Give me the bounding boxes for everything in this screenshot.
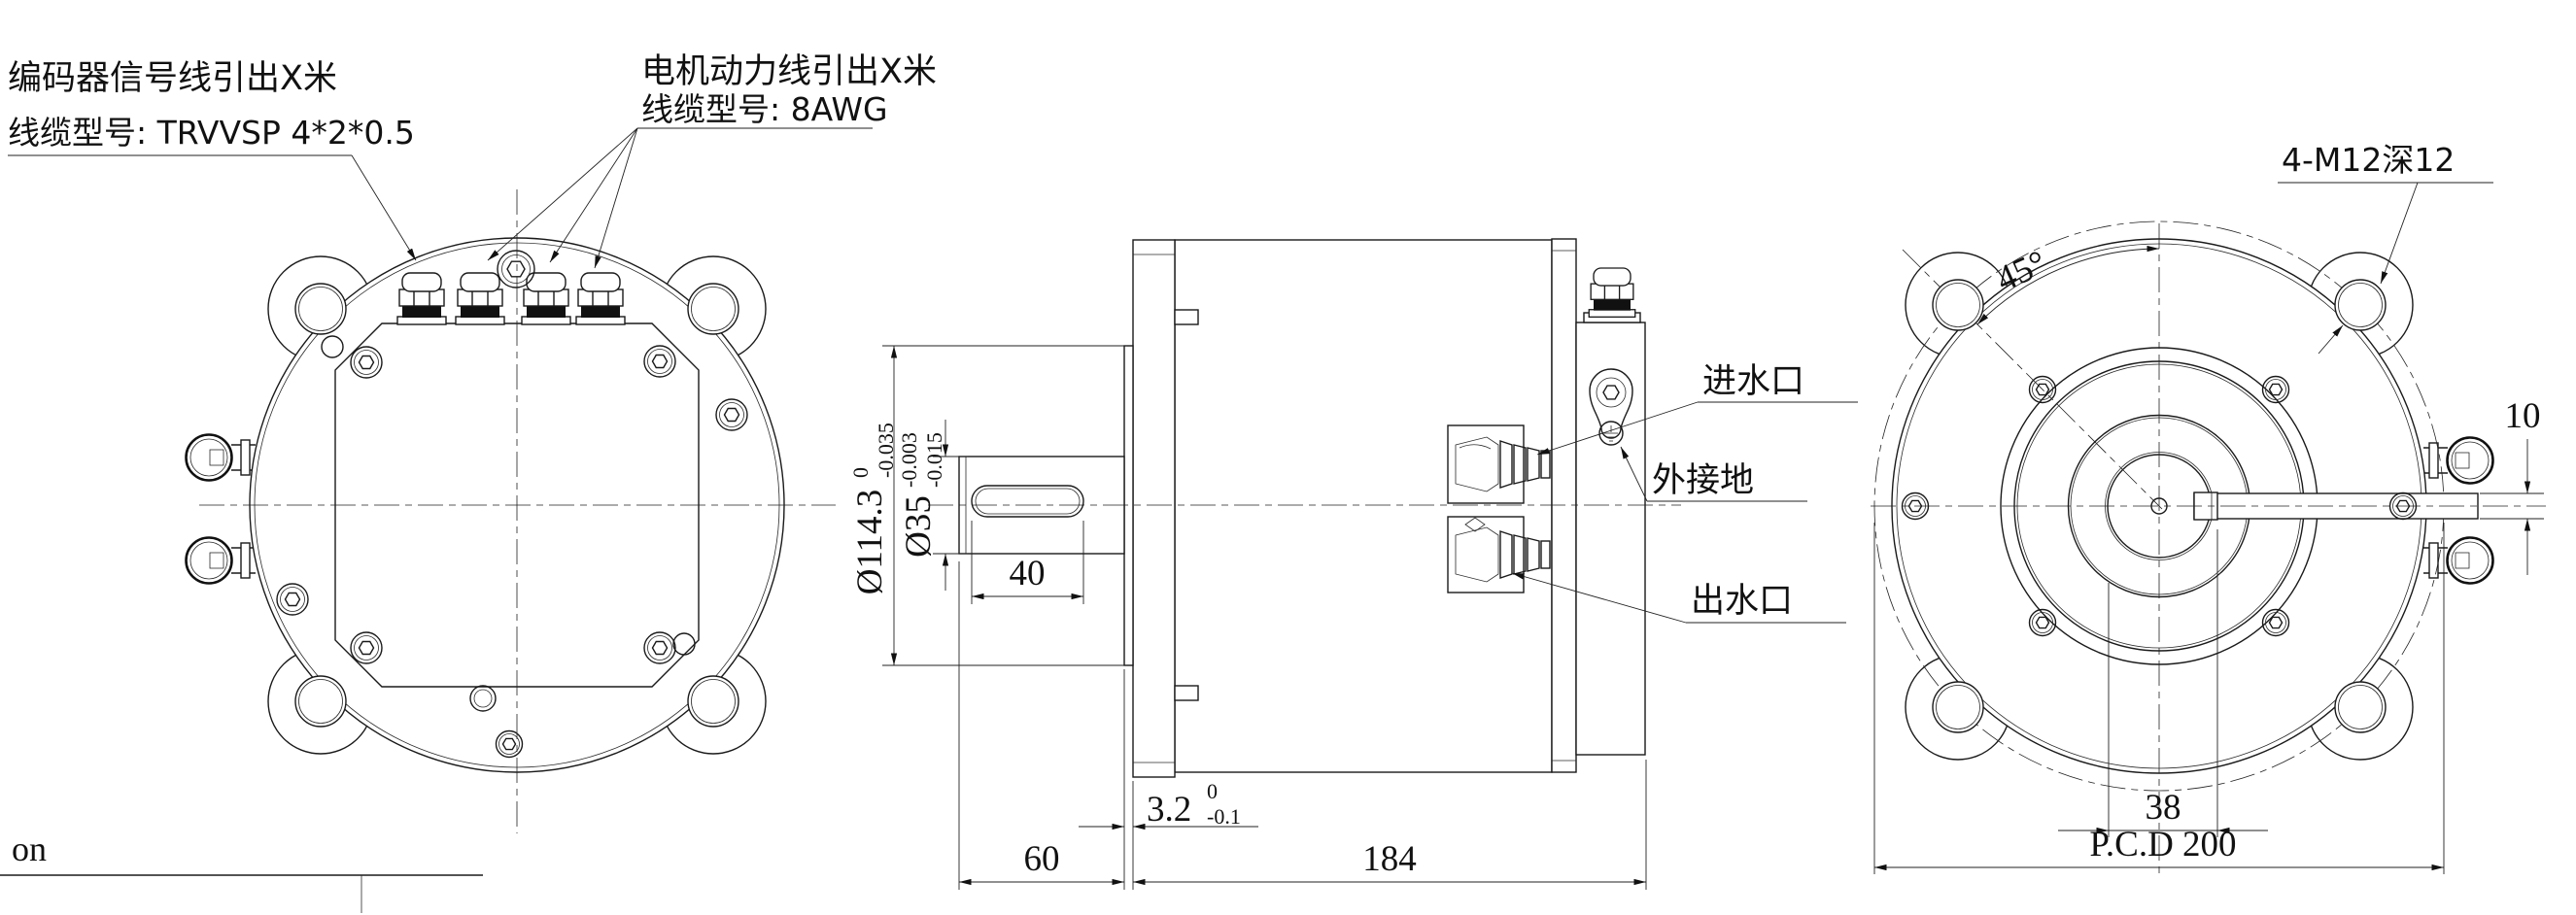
rear-housing [1576, 322, 1645, 755]
title-block-corner: on [0, 830, 483, 913]
mounting-ear-hole [688, 284, 738, 334]
cad-drawing-page: 编码器信号线引出X米 线缆型号: TRVVSP 4*2*0.5 电机动力线引出X… [0, 0, 2576, 915]
leader-power-gland-3 [595, 128, 637, 268]
front-flange [1133, 240, 1175, 777]
dim-spigot-protrusion: 3.2 0 -0.1 [1147, 779, 1241, 830]
dim-spigot-value: 3.2 [1147, 790, 1191, 830]
m12-hole [2335, 682, 2386, 732]
mounting-ear-hole [295, 676, 346, 727]
rear-plate [1552, 239, 1576, 772]
mounting-ear-hole [688, 676, 738, 727]
water-port-front-upper [187, 435, 257, 481]
power-label-line2: 线缆型号: 8AWG [641, 90, 888, 128]
dim-shaft-tol-upper: -0.003 [897, 432, 921, 488]
motor-drawing-svg: 编码器信号线引出X米 线缆型号: TRVVSP 4*2*0.5 电机动力线引出X… [0, 0, 2576, 915]
dim-pilot-tol-upper: 0 [848, 467, 873, 478]
encoder-label-line2: 线缆型号: TRVVSP 4*2*0.5 [8, 114, 415, 152]
dim-spigot-tol-lower: -0.1 [1207, 804, 1241, 829]
water-outlet-text: 出水口 [1691, 582, 1793, 621]
water-inlet-text: 进水口 [1702, 362, 1804, 401]
leader-m12 [2381, 183, 2418, 284]
cable-gland-3 [522, 273, 570, 324]
dim-shaft-tol-lower: -0.015 [922, 432, 946, 488]
encoder-cable-label: 编码器信号线引出X米 线缆型号: TRVVSP 4*2*0.5 [8, 59, 416, 260]
m12-hole [1933, 280, 1983, 330]
front-view [187, 189, 837, 833]
dim-key-width: 10 [2505, 396, 2541, 436]
dim-body-length: 184 [1362, 839, 1417, 879]
dim-keyway-length: 40 [1010, 554, 1046, 593]
mounting-ear-hole [295, 284, 346, 334]
m12-hole [2335, 280, 2386, 330]
motor-body-side [1175, 240, 1552, 772]
water-port-rear-upper [2423, 438, 2493, 484]
external-ground-label: 外接地 [1621, 447, 1807, 501]
cable-gland-4 [576, 273, 625, 324]
m12-hole [1933, 682, 1983, 732]
cable-gland-1 [397, 273, 446, 324]
dim-shaft-diameter: Ø35 -0.003 -0.015 [897, 432, 946, 558]
side-view [928, 239, 1681, 777]
dim-pilot-diameter: Ø114.3 0 -0.035 [848, 423, 898, 594]
dim-pilot-value: Ø114.3 [850, 490, 890, 595]
power-cable-label: 电机动力线引出X米 线缆型号: 8AWG [488, 52, 937, 268]
leader-power-gland-1 [488, 128, 637, 260]
dim-spigot-tol-upper: 0 [1207, 779, 1218, 803]
dim-pitch-circle: P.C.D 200 [2089, 825, 2236, 864]
external-ground-text: 外接地 [1652, 461, 1754, 500]
mounting-holes-text: 4-M12深12 [2282, 141, 2455, 179]
rear-view [1871, 221, 2546, 879]
cable-gland-2 [456, 273, 504, 324]
encoder-label-line1: 编码器信号线引出X米 [8, 59, 337, 98]
rear-cable-gland [1589, 268, 1635, 317]
leader-encoder-gland [352, 155, 416, 260]
water-port-front-lower [187, 538, 257, 584]
power-label-line1: 电机动力线引出X米 [641, 52, 937, 91]
dim-shaft-extension: 60 [1024, 839, 1060, 879]
corner-text: on [12, 830, 47, 868]
water-port-rear-lower [2423, 538, 2493, 584]
dim-pilot-tol-lower: -0.035 [874, 423, 898, 478]
dim-key-length: 38 [2146, 788, 2181, 828]
pilot-spigot [1124, 346, 1133, 665]
dim-shaft-value: Ø35 [899, 495, 939, 558]
leader-power-gland-2 [550, 128, 637, 262]
